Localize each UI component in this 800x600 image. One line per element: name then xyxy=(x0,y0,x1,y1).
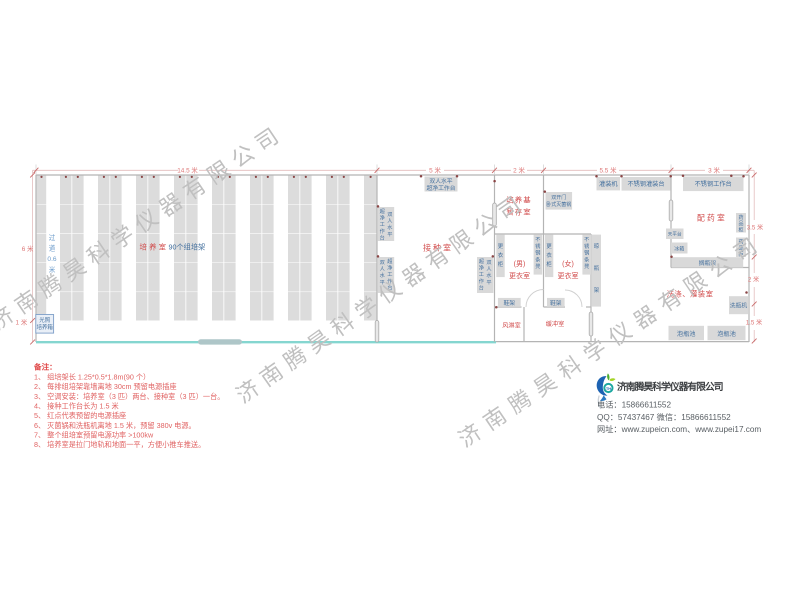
svg-text:(男): (男) xyxy=(514,260,526,268)
svg-text:冰箱: 冰箱 xyxy=(674,245,684,252)
svg-text:TH: TH xyxy=(606,386,611,391)
svg-text:更衣柜: 更衣柜 xyxy=(498,243,504,268)
svg-text:7、 整个组培室预留电源功率 >100kw: 7、 整个组培室预留电源功率 >100kw xyxy=(34,431,154,440)
svg-text:双人水平: 双人水平 xyxy=(429,177,452,185)
svg-text:2 米: 2 米 xyxy=(748,276,759,284)
svg-text:鞋架: 鞋架 xyxy=(550,299,562,307)
svg-text:超净工作台: 超净工作台 xyxy=(380,207,386,241)
svg-text:洗瓶机: 洗瓶机 xyxy=(730,302,748,310)
svg-text:卧式灭菌锅: 卧式灭菌锅 xyxy=(546,201,571,208)
svg-text:培养室: 培养室 xyxy=(140,243,169,252)
svg-text:(女): (女) xyxy=(562,259,574,268)
svg-text:不锈钢条凳: 不锈钢条凳 xyxy=(535,236,540,270)
svg-text:3 米: 3 米 xyxy=(708,166,720,175)
svg-text:双开门: 双开门 xyxy=(551,194,566,201)
svg-text:风淋室: 风淋室 xyxy=(502,322,521,330)
svg-text:电话：15866611552: 电话：15866611552 xyxy=(597,400,671,410)
svg-text:2 米: 2 米 xyxy=(513,166,525,175)
svg-text:QQ：57437467 微信：15866611552: QQ：57437467 微信：15866611552 xyxy=(597,412,731,422)
svg-text:更衣柜: 更衣柜 xyxy=(546,243,552,268)
svg-text:1.5 米: 1.5 米 xyxy=(746,319,763,327)
svg-text:6 米: 6 米 xyxy=(22,244,34,253)
svg-text:鞋架: 鞋架 xyxy=(503,299,515,307)
svg-text:双人水平: 双人水平 xyxy=(486,259,492,286)
svg-text:天平台: 天平台 xyxy=(668,231,682,238)
svg-text:双人水平: 双人水平 xyxy=(387,211,393,238)
svg-text:不锈钢条凳: 不锈钢条凳 xyxy=(584,236,589,270)
svg-text:泡瓶池: 泡瓶池 xyxy=(677,330,696,338)
svg-text:备注：: 备注： xyxy=(33,362,57,372)
svg-text:2、 每排组培架靠墙离地 30cm 预留电源插座: 2、 每排组培架靠墙离地 30cm 预留电源插座 xyxy=(34,382,177,391)
svg-text:不锈钢工作台: 不锈钢工作台 xyxy=(695,180,732,188)
svg-text:8、 培养室是拉门地轨和地面一平，方便小推车推送。: 8、 培养室是拉门地轨和地面一平，方便小推车推送。 xyxy=(34,440,205,449)
svg-text:缓冲室: 缓冲室 xyxy=(546,320,565,328)
svg-text:1、 组培架长 1.25*0.5*1.8m(90 个）: 1、 组培架长 1.25*0.5*1.8m(90 个） xyxy=(34,373,150,382)
svg-text:网址：www.zupeicn.com、www.zupei17: 网址：www.zupeicn.com、www.zupei17.com xyxy=(597,424,761,434)
svg-text:更衣室: 更衣室 xyxy=(509,271,530,280)
svg-text:配药室: 配药室 xyxy=(697,213,727,223)
svg-text:更衣室: 更衣室 xyxy=(558,271,579,280)
svg-text:3、 空调安装：培养室（3 匹）两台、接种室（3 匹）一台。: 3、 空调安装：培养室（3 匹）两台、接种室（3 匹）一台。 xyxy=(34,392,225,401)
svg-text:济南腾昊科学仪器有限公司: 济南腾昊科学仪器有限公司 xyxy=(617,380,723,393)
svg-text:不锈钢灌装台: 不锈钢灌装台 xyxy=(627,180,664,188)
svg-text:药品柜: 药品柜 xyxy=(738,214,743,234)
svg-text:6、 灭菌锅和洗瓶机离地 1.5 米，预留 380v 电源。: 6、 灭菌锅和洗瓶机离地 1.5 米，预留 380v 电源。 xyxy=(34,421,196,430)
svg-text:超净工作台: 超净工作台 xyxy=(427,184,456,192)
svg-text:5、 红点代表预留的电源插座: 5、 红点代表预留的电源插座 xyxy=(34,411,126,420)
svg-text:泡瓶池: 泡瓶池 xyxy=(717,330,736,338)
svg-text:超净工作台: 超净工作台 xyxy=(479,257,485,291)
svg-text:5 米: 5 米 xyxy=(429,166,441,175)
svg-text:培养箱: 培养箱 xyxy=(37,323,54,331)
svg-text:光照: 光照 xyxy=(39,316,50,324)
svg-text:5.5 米: 5.5 米 xyxy=(599,166,617,175)
svg-text:4、 接种工作台长为 1.5 米: 4、 接种工作台长为 1.5 米 xyxy=(34,402,119,411)
svg-text:灌装机: 灌装机 xyxy=(599,180,618,188)
svg-text:90个组培架: 90个组培架 xyxy=(169,243,206,252)
